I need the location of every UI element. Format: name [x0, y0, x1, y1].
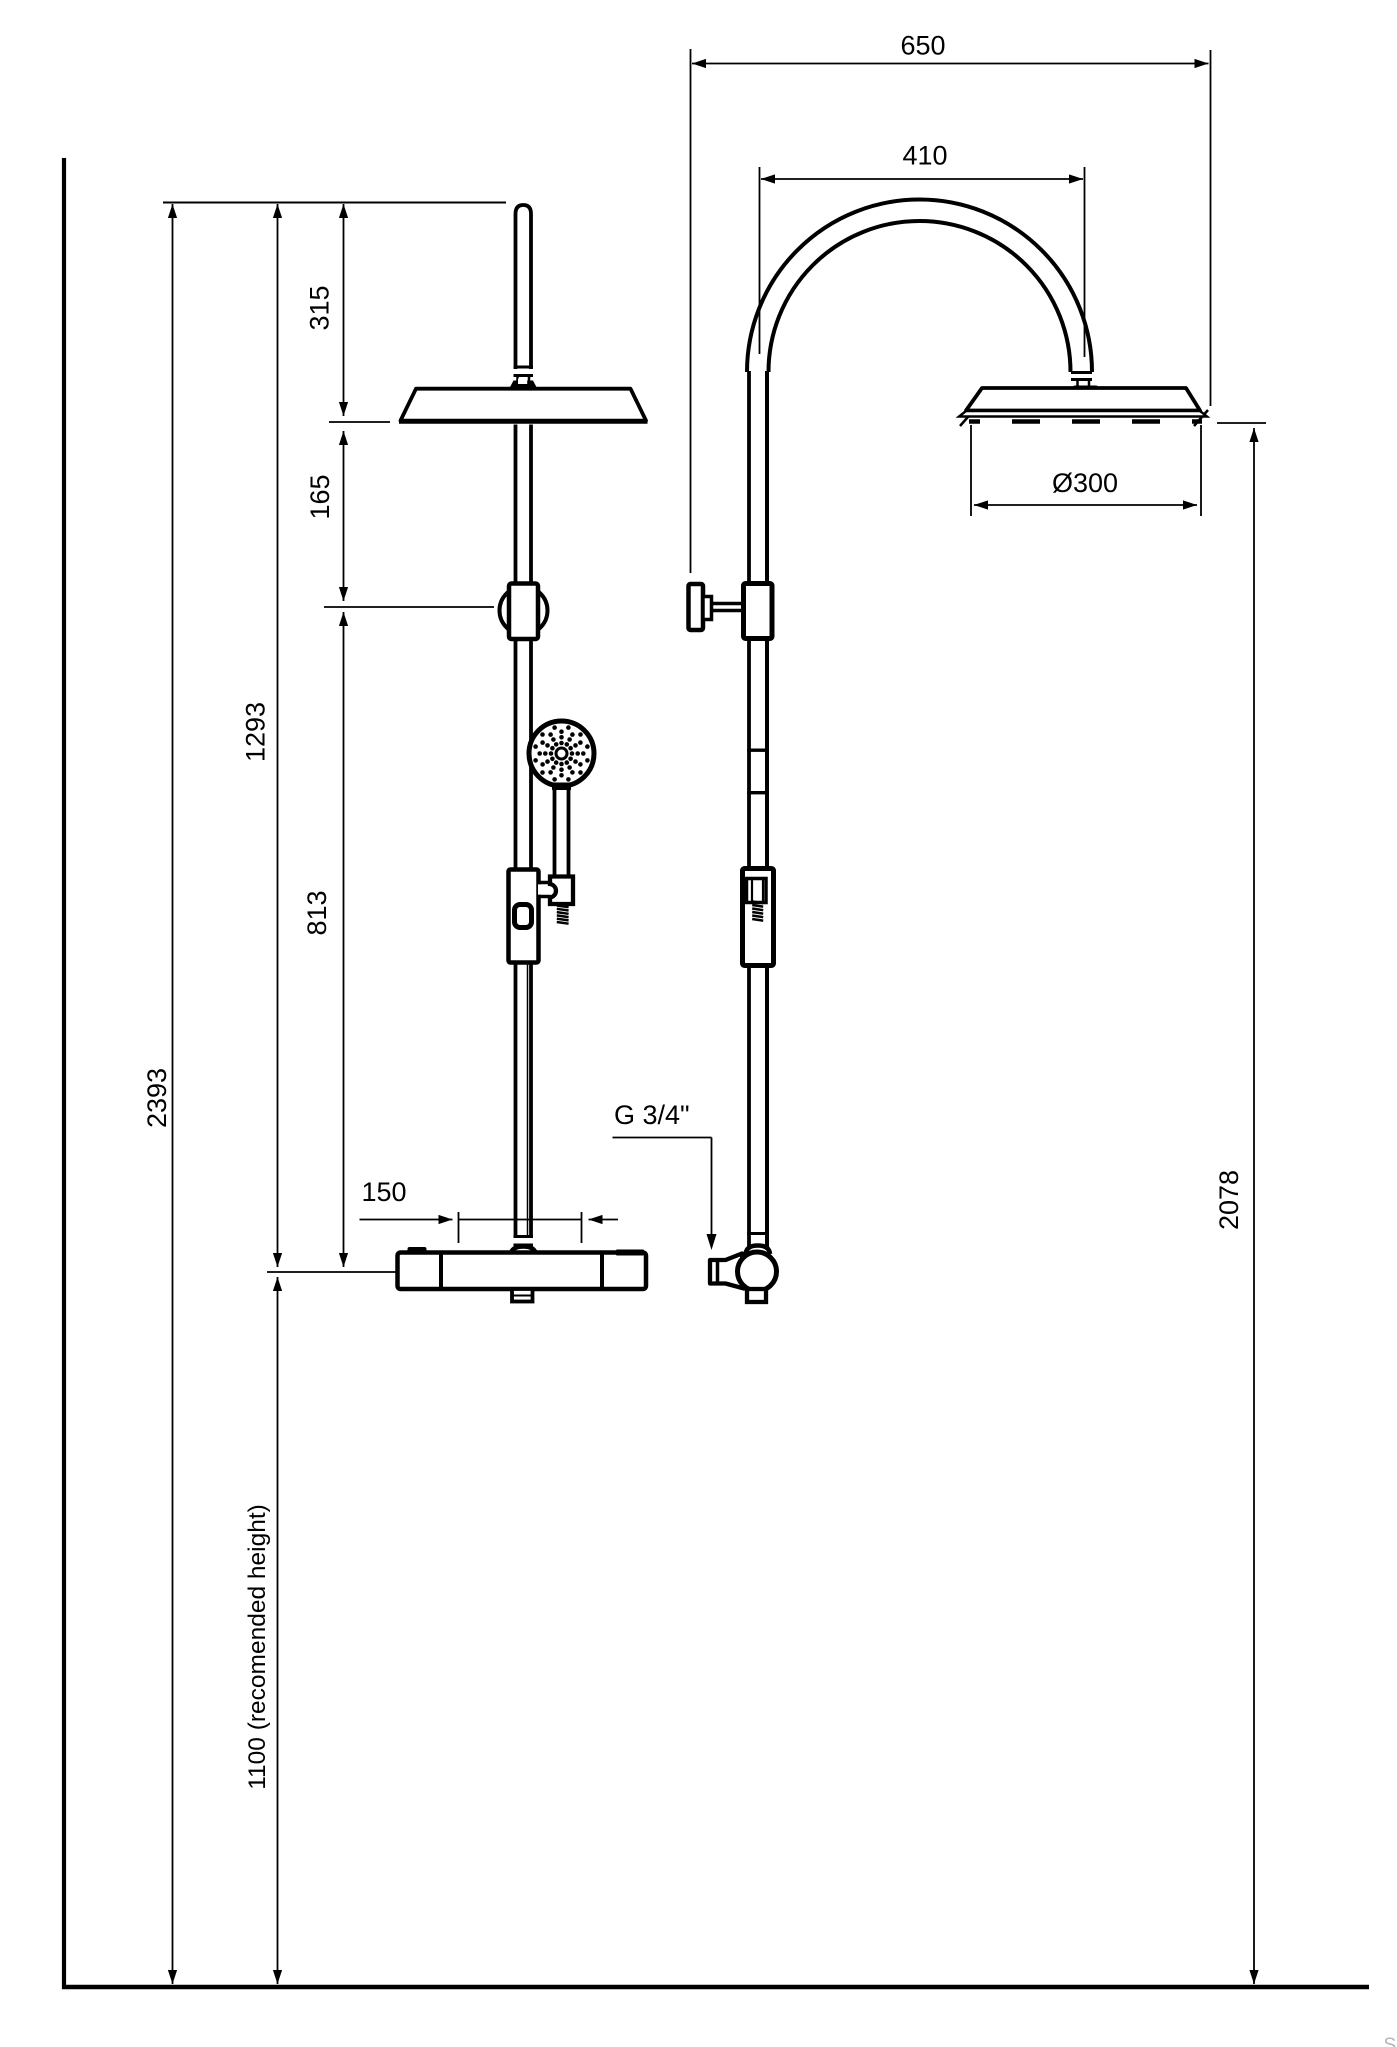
svg-text:2393: 2393 [142, 1068, 172, 1128]
svg-text:150: 150 [361, 1177, 406, 1207]
svg-text:165: 165 [305, 474, 335, 519]
svg-text:1100 (recomended height): 1100 (recomended height) [244, 1504, 271, 1790]
svg-text:813: 813 [302, 890, 332, 935]
svg-text:650: 650 [900, 31, 945, 61]
svg-text:315: 315 [305, 285, 335, 330]
svg-text:410: 410 [902, 141, 947, 171]
svg-text:1293: 1293 [241, 702, 271, 762]
svg-text:Ø300: Ø300 [1052, 468, 1118, 498]
svg-text:G 3/4": G 3/4" [614, 1100, 690, 1130]
svg-text:SU: SU [1384, 2035, 1397, 2047]
svg-text:2078: 2078 [1214, 1170, 1244, 1230]
